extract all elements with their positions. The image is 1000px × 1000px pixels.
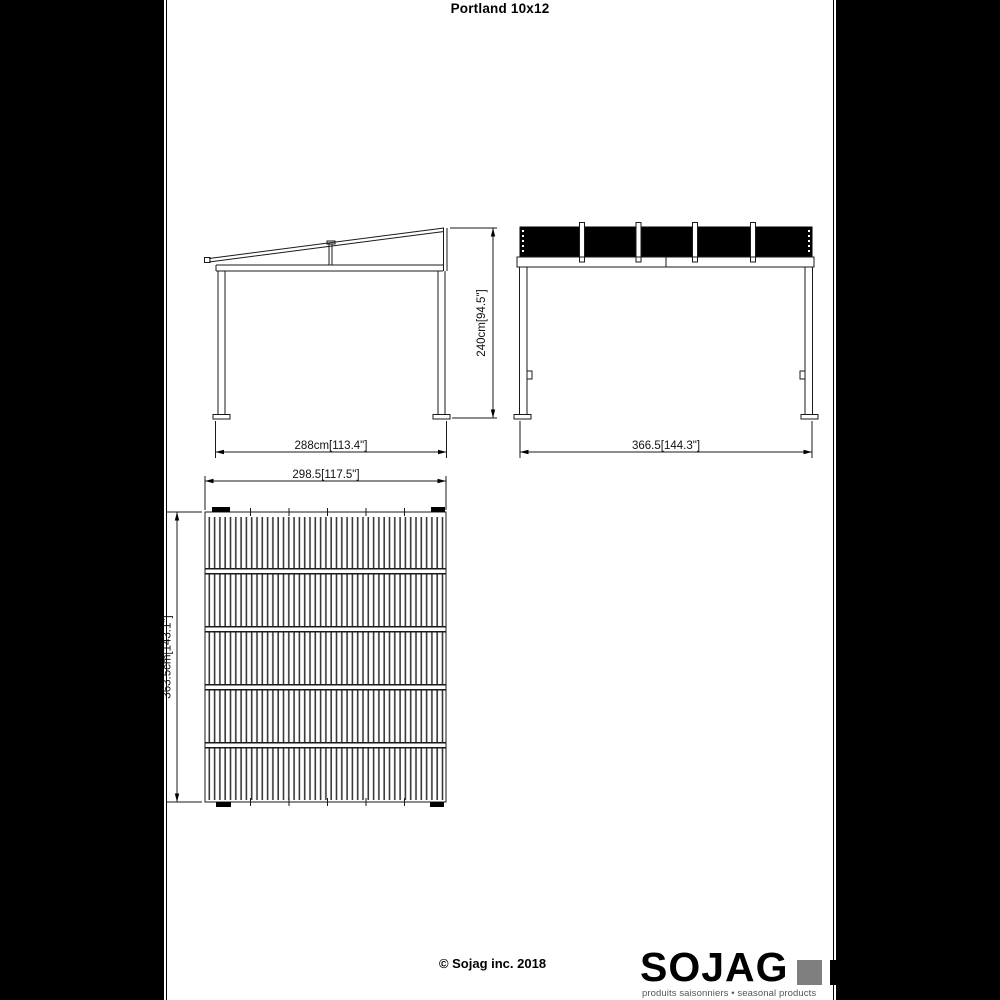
front-beam	[517, 257, 814, 267]
side-posts	[213, 271, 450, 419]
side-roof-outline	[205, 228, 448, 272]
top-width-dimension: 298.5[117.5"]	[205, 469, 446, 510]
front-view: 366.5[144.3"]	[514, 223, 818, 459]
side-height-dimension: 240cm[94.5"]	[450, 228, 497, 418]
copyright-text: © Sojag inc. 2018	[380, 956, 605, 971]
side-foot-plate-right	[433, 415, 450, 420]
side-view: 288cm[113.4"] 240cm[94.5"]	[205, 228, 498, 459]
front-roof-panel-band	[520, 227, 812, 257]
front-posts	[514, 267, 818, 419]
top-depth-dimension: 363.5cm[143.1"]	[162, 512, 203, 802]
brand-logo-black-square	[830, 960, 855, 985]
front-foot-plate-right	[801, 415, 818, 420]
page-border-right	[833, 0, 834, 1000]
top-view: 298.5[117.5"] 363.5cm[143.1"]	[162, 469, 447, 807]
left-black-bar	[0, 0, 164, 1000]
right-black-bar	[836, 0, 1000, 1000]
side-width-label: 288cm[113.4"]	[295, 440, 368, 452]
front-post-hook-left	[527, 371, 532, 379]
brand-logo-gray-square	[797, 960, 822, 985]
brand-logo-wordmark: SOJAG	[640, 947, 789, 988]
page-border-left	[166, 0, 167, 1000]
front-width-dimension: 366.5[144.3"]	[520, 421, 812, 458]
top-roof-slats	[208, 517, 444, 800]
top-width-label: 298.5[117.5"]	[292, 469, 359, 481]
side-foot-plate-left	[213, 415, 230, 420]
side-height-label: 240cm[94.5"]	[476, 289, 488, 356]
front-width-label: 366.5[144.3"]	[632, 440, 700, 452]
brand-logo-tagline: produits saisonniers • seasonal products	[642, 988, 842, 999]
front-post-hook-right	[800, 371, 805, 379]
side-width-dimension: 288cm[113.4"]	[216, 421, 447, 458]
page-title: Portland 10x12	[165, 1, 835, 16]
front-foot-plate-left	[514, 415, 531, 420]
